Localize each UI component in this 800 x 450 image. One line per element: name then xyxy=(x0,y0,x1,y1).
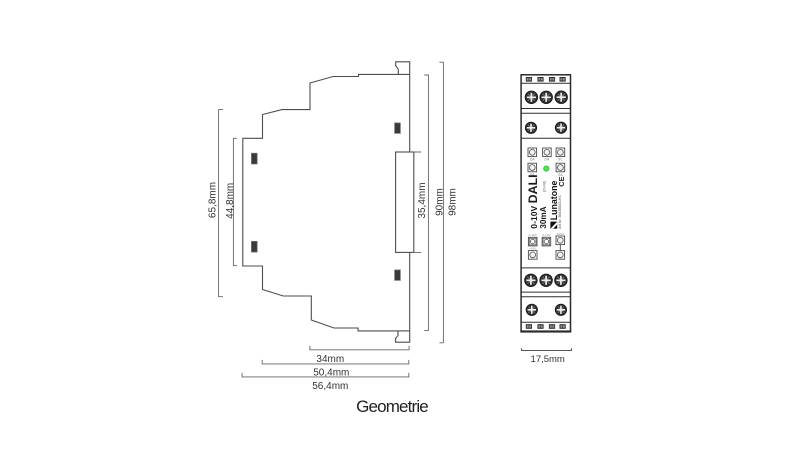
svg-text:SA: SA xyxy=(558,173,563,177)
svg-text:35,4mm: 35,4mm xyxy=(417,182,428,218)
svg-text:DA: DA xyxy=(545,158,550,162)
svg-text:34mm: 34mm xyxy=(316,354,344,365)
svg-text:(0V48): (0V48) xyxy=(543,180,547,192)
svg-text:30mA: 30mA xyxy=(539,206,548,228)
svg-text:COM: COM xyxy=(557,232,565,236)
svg-text:CE: CE xyxy=(557,176,566,186)
svg-text:44,8mm: 44,8mm xyxy=(225,183,236,219)
svg-text:SC: SC xyxy=(558,158,563,162)
svg-text:0-10V: 0-10V xyxy=(529,233,538,237)
svg-text:17,5mm: 17,5mm xyxy=(531,354,565,365)
svg-text:98mm: 98mm xyxy=(448,188,459,216)
svg-text:Geometrie: Geometrie xyxy=(356,397,428,416)
svg-text:56,4mm: 56,4mm xyxy=(312,381,348,392)
svg-text:DA: DA xyxy=(530,158,535,162)
svg-text:+16V: +16V xyxy=(529,247,537,251)
svg-text:0-10V: 0-10V xyxy=(542,233,551,237)
svg-text:65,8mm: 65,8mm xyxy=(207,182,218,218)
svg-text:0-10V DALI: 0-10V DALI xyxy=(526,174,540,228)
svg-text:Art.Nr. 86458533-HS: Art.Nr. 86458533-HS xyxy=(558,195,562,229)
